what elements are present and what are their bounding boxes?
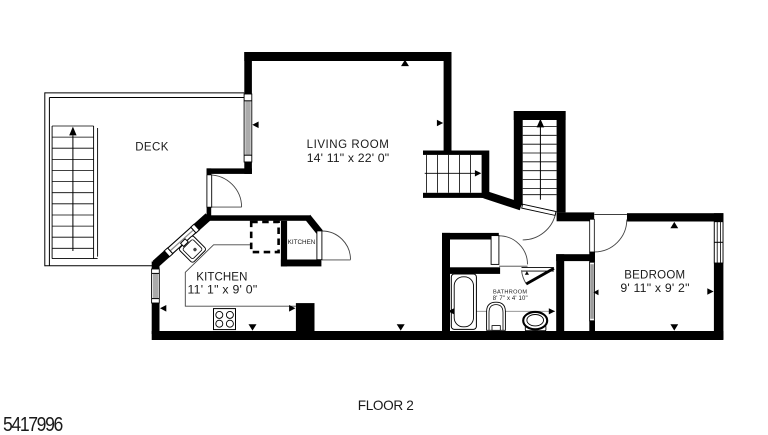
svg-text:KITCHEN: KITCHEN xyxy=(288,239,316,246)
svg-text:11' 1" x 9' 0": 11' 1" x 9' 0" xyxy=(187,283,257,297)
svg-text:9' 11" x 9' 2": 9' 11" x 9' 2" xyxy=(620,281,689,295)
svg-text:BEDROOM: BEDROOM xyxy=(624,270,685,282)
svg-text:DECK: DECK xyxy=(135,142,169,154)
svg-text:5417996: 5417996 xyxy=(3,413,63,435)
svg-text:LIVING ROOM: LIVING ROOM xyxy=(307,139,390,151)
svg-text:14' 11" x 22' 0": 14' 11" x 22' 0" xyxy=(307,151,390,165)
svg-text:8' 7" x 4' 10": 8' 7" x 4' 10" xyxy=(493,296,528,302)
svg-text:BATHROOM: BATHROOM xyxy=(493,289,527,295)
svg-text:FLOOR 2: FLOOR 2 xyxy=(358,398,414,413)
